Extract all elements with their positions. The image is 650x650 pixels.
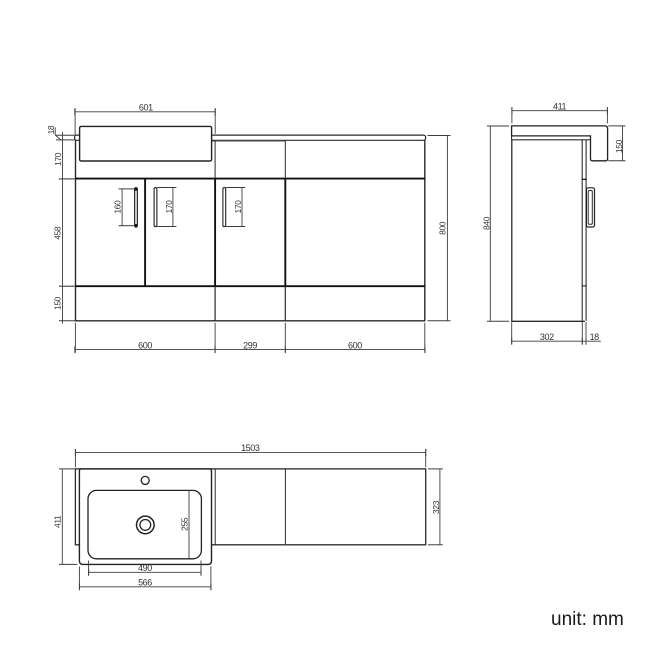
svg-text:150: 150 <box>52 296 62 310</box>
svg-text:150: 150 <box>614 139 624 153</box>
svg-text:18: 18 <box>590 332 600 342</box>
svg-text:170: 170 <box>164 200 174 214</box>
svg-text:601: 601 <box>139 103 153 113</box>
svg-text:600: 600 <box>348 340 362 350</box>
svg-text:411: 411 <box>53 515 63 528</box>
svg-text:255: 255 <box>180 517 190 531</box>
svg-text:600: 600 <box>138 340 152 350</box>
svg-text:458: 458 <box>53 226 63 240</box>
svg-text:323: 323 <box>431 500 441 514</box>
svg-text:1503: 1503 <box>241 443 260 453</box>
svg-text:302: 302 <box>540 332 554 342</box>
svg-text:411: 411 <box>553 102 567 112</box>
svg-text:840: 840 <box>481 216 491 230</box>
svg-text:170: 170 <box>233 200 243 214</box>
svg-text:800: 800 <box>438 221 448 235</box>
svg-text:299: 299 <box>243 340 257 350</box>
svg-text:18: 18 <box>46 125 56 134</box>
svg-text:160: 160 <box>112 200 122 214</box>
svg-text:170: 170 <box>53 152 63 166</box>
svg-text:490: 490 <box>138 563 152 573</box>
svg-text:unit: mm: unit: mm <box>551 609 624 630</box>
svg-text:566: 566 <box>138 578 152 588</box>
